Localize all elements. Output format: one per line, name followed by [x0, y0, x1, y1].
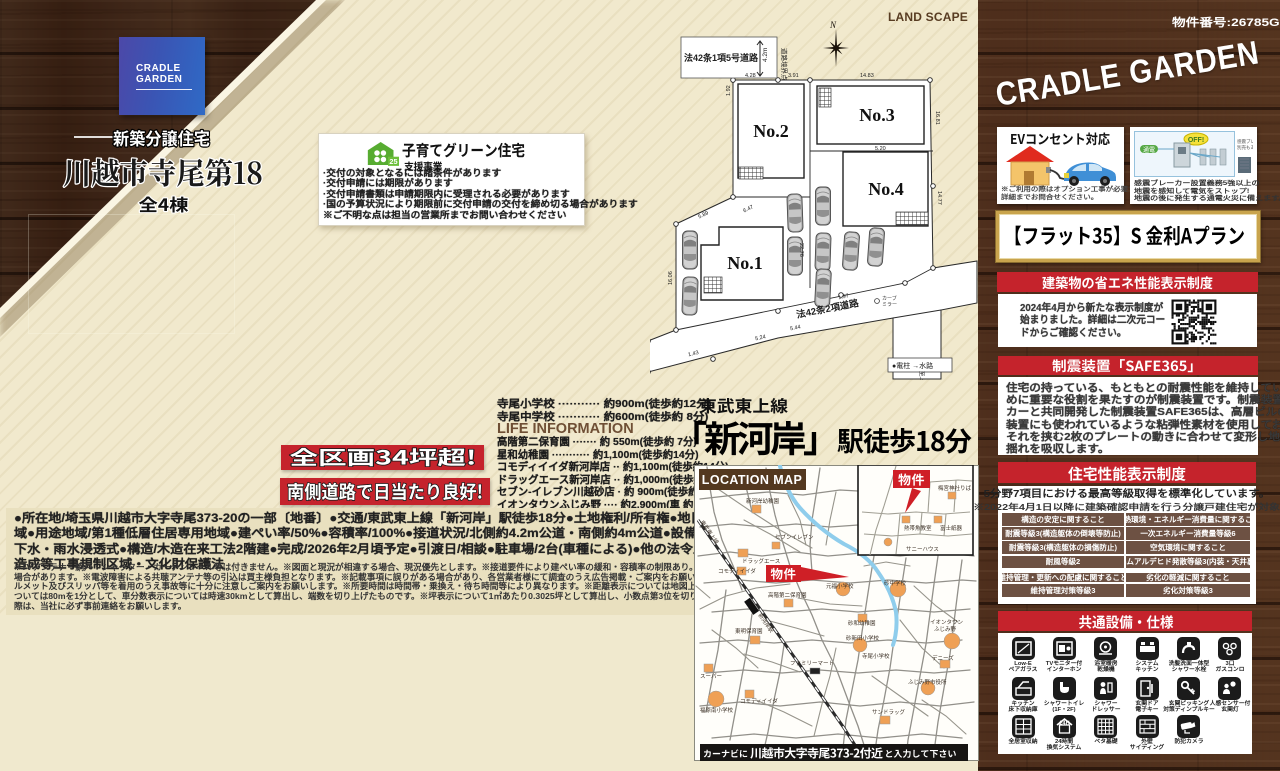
- svg-text:新河岸幼稚園: 新河岸幼稚園: [746, 497, 780, 505]
- svg-text:カーブ: カーブ: [882, 295, 897, 302]
- svg-text:東明保育園: 東明保育園: [735, 627, 763, 635]
- svg-text:法42条1項5号道路: 法42条1項5号道路: [684, 52, 759, 63]
- svg-text:至上福岡: 至上福岡: [918, 371, 926, 380]
- svg-text:イオンタウン: イオンタウン: [930, 618, 964, 626]
- svg-text:砂中学校: 砂中学校: [884, 579, 907, 587]
- svg-text:高階第二保育園: 高階第二保育園: [768, 591, 807, 599]
- svg-text:感震ブレーカー: 感震ブレーカー: [1237, 138, 1253, 145]
- svg-text:セブンイレブン: セブンイレブン: [775, 533, 814, 541]
- svg-text:LAND SCAPE: LAND SCAPE: [888, 10, 968, 24]
- svg-text:ドラッグエース: ドラッグエース: [742, 557, 780, 565]
- svg-text:ファミリーマート: ファミリーマート: [790, 660, 834, 667]
- svg-text:デニーズ: デニーズ: [932, 654, 954, 662]
- svg-text:14.77: 14.77: [936, 191, 942, 205]
- svg-text:4.28: 4.28: [745, 73, 756, 79]
- svg-text:梅宮神社りば: 梅宮神社りば: [938, 484, 972, 492]
- svg-text:●電柱 →水路: ●電柱 →水路: [892, 361, 933, 370]
- svg-text:コモディイイダ: コモディイイダ: [718, 567, 756, 575]
- svg-text:N: N: [829, 20, 837, 30]
- svg-text:1.92: 1.92: [726, 85, 732, 96]
- svg-text:コモディイイダ: コモディイイダ: [740, 697, 778, 705]
- svg-text:4.2m: 4.2m: [762, 48, 769, 62]
- svg-text:No.2: No.2: [753, 121, 789, 141]
- svg-text:24H: 24H: [1059, 721, 1069, 727]
- svg-text:通電: 通電: [1143, 146, 1155, 154]
- svg-text:No.3: No.3: [859, 105, 895, 125]
- svg-text:ふじみ野市役所: ふじみ野市役所: [908, 678, 947, 686]
- svg-text:砂和幼稚園: 砂和幼稚園: [848, 619, 876, 627]
- svg-text:LOCATION MAP: LOCATION MAP: [702, 473, 802, 487]
- svg-text:ミラー: ミラー: [882, 302, 897, 308]
- svg-text:熱帯魚教室: 熱帯魚教室: [904, 524, 932, 532]
- svg-text:サンドラッグ: サンドラッグ: [872, 708, 906, 716]
- svg-text:スーパー: スーパー: [700, 673, 722, 680]
- svg-text:ふじみ野: ふじみ野: [934, 625, 957, 633]
- svg-text:22.76: 22.76: [798, 243, 804, 257]
- svg-text:福原南小学校: 福原南小学校: [700, 706, 734, 714]
- svg-text:16.81: 16.81: [934, 111, 940, 125]
- svg-text:サニーハウス: サニーハウス: [906, 545, 939, 553]
- svg-text:No.1: No.1: [727, 253, 763, 273]
- svg-text:16.06: 16.06: [668, 271, 674, 285]
- svg-text:元福小学校: 元福小学校: [826, 582, 854, 590]
- svg-text:別売もあります: 別売もあります: [1237, 144, 1253, 151]
- svg-text:砂新田小学校: 砂新田小学校: [846, 634, 880, 642]
- svg-text:3.91: 3.91: [788, 73, 799, 79]
- svg-text:5.20: 5.20: [875, 146, 886, 152]
- svg-text:No.4: No.4: [868, 179, 904, 199]
- svg-text:富士紙器: 富士紙器: [940, 524, 963, 532]
- svg-text:25: 25: [389, 157, 397, 166]
- svg-text:寺尾小学校: 寺尾小学校: [862, 652, 890, 660]
- svg-text:14.83: 14.83: [860, 73, 874, 79]
